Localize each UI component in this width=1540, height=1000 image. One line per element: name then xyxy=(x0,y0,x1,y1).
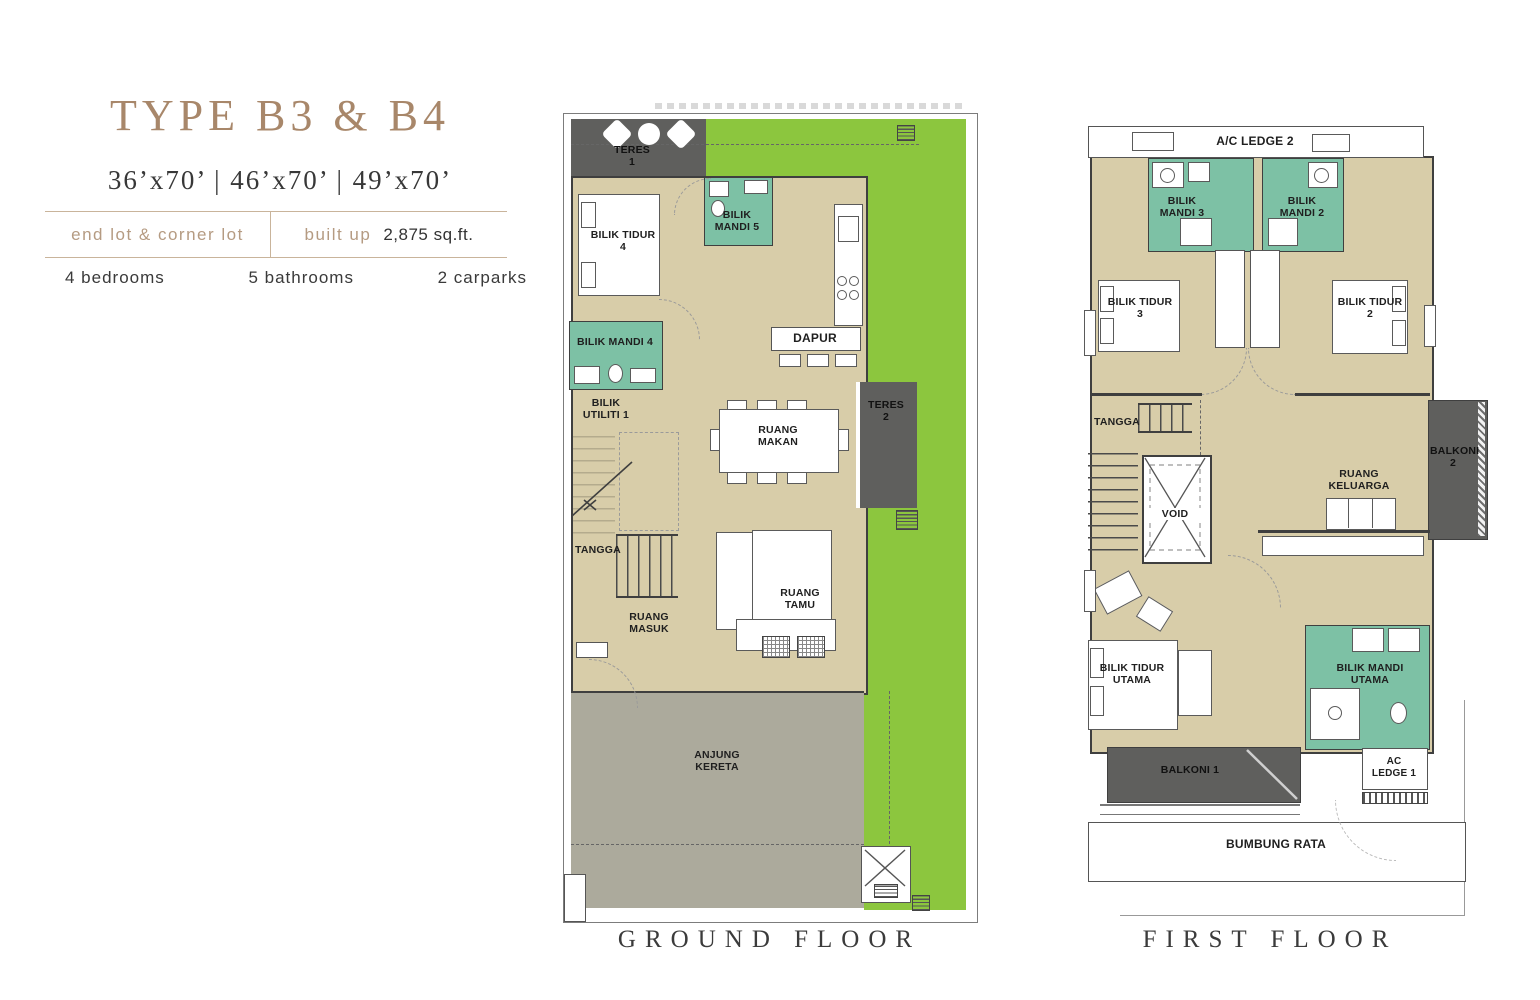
ruang-tamu-label: RUANG TAMU xyxy=(767,587,833,611)
bilik-tidur-4-label: BILIK TIDUR 4 xyxy=(588,229,658,253)
ottoman xyxy=(762,636,790,658)
bilik-tidur-2-label: BILIK TIDUR 2 xyxy=(1334,296,1406,320)
bilik-mandi-2-label: BILIK MANDI 2 xyxy=(1272,195,1332,219)
faint-top-strip xyxy=(655,103,965,109)
spec-row: 4 bedrooms 5 bathrooms 2 carparks xyxy=(45,268,569,288)
tv-console xyxy=(1262,536,1424,556)
sofa-chaise xyxy=(716,532,754,630)
pillow xyxy=(581,262,596,288)
ruang-masuk-label: RUANG MASUK xyxy=(619,611,679,635)
sofa-divider xyxy=(1348,498,1349,528)
bilik-utiliti-1-label: BILIK UTILITI 1 xyxy=(576,397,636,421)
lot-dimensions: 36’x70’ | 46’x70’ | 49’x70’ xyxy=(90,165,470,196)
built-up-label: built up xyxy=(305,225,372,245)
void-label: VOID xyxy=(1144,508,1206,520)
wall xyxy=(1090,393,1202,396)
balkoni-1-diagonal xyxy=(1245,748,1299,801)
ruang-makan-label: RUANG MAKAN xyxy=(743,424,813,448)
bilik-mandi-utama-label: BILIK MANDI UTAMA xyxy=(1327,662,1413,686)
anjung-kereta-area xyxy=(571,691,864,908)
sink xyxy=(574,366,600,384)
stool xyxy=(835,354,857,367)
ground-floor-caption: GROUND FLOOR xyxy=(563,926,976,954)
sink xyxy=(1388,628,1420,652)
balkoni-1-railing xyxy=(1100,804,1300,815)
dining-chair xyxy=(757,472,777,484)
stool xyxy=(779,354,801,367)
lot-dashed-line xyxy=(889,691,890,844)
lawn-top xyxy=(706,119,866,177)
ottoman xyxy=(797,636,825,658)
basin-bowl xyxy=(1314,168,1329,183)
balkoni-1-label: BALKONI 1 xyxy=(1135,764,1245,776)
stool xyxy=(807,354,829,367)
bilik-mandi-3-label: BILIK MANDI 3 xyxy=(1152,195,1212,219)
tangga-label-gf: TANGGA xyxy=(567,544,629,556)
basin xyxy=(630,368,656,383)
wall xyxy=(1295,393,1430,396)
carparks-count: 2 carparks xyxy=(438,268,527,288)
sofa-divider xyxy=(1372,498,1373,528)
stair-flight-left xyxy=(1088,453,1138,555)
bilik-mandi-4-label: BILIK MANDI 4 xyxy=(576,336,654,348)
ac-unit xyxy=(1132,132,1174,151)
drain-icon xyxy=(896,510,918,530)
lamp-icon xyxy=(638,123,660,145)
carport-dashed-line xyxy=(571,844,864,845)
pillow xyxy=(1392,320,1406,346)
toilet xyxy=(1390,702,1407,724)
gate-pillar xyxy=(564,874,586,922)
bumbung-rata-area xyxy=(1088,822,1466,882)
drain-icon xyxy=(912,895,930,911)
bumbung-rata-label: BUMBUNG RATA xyxy=(1220,838,1332,852)
corridor-strip xyxy=(1250,250,1280,348)
ground-floor-plan: TERES 1 BILIK TIDUR 4 BILIK MANDI 5 DAPU… xyxy=(563,113,978,923)
meter-box xyxy=(874,884,898,898)
corridor-strip xyxy=(1215,250,1245,348)
hob-burner xyxy=(837,290,847,300)
ruang-keluarga-label: RUANG KELUARGA xyxy=(1318,468,1400,492)
balkoni-2-railing xyxy=(1478,402,1485,536)
dining-chair xyxy=(787,472,807,484)
utility-x-mark xyxy=(863,848,907,888)
sink xyxy=(709,181,729,197)
teres-2-label: TERES 2 xyxy=(866,399,906,423)
coffee-table xyxy=(752,530,832,628)
window xyxy=(1084,310,1096,356)
pillow xyxy=(1090,686,1104,716)
built-up-value: 2,875 sq.ft. xyxy=(383,225,473,245)
window xyxy=(1084,570,1096,612)
bedrooms-count: 4 bedrooms xyxy=(65,268,165,288)
sink xyxy=(1352,628,1384,652)
first-floor-caption: FIRST FLOOR xyxy=(1080,926,1460,954)
wardrobe xyxy=(1178,650,1212,716)
sofa xyxy=(1326,498,1396,530)
hob-burner xyxy=(837,276,847,286)
basin xyxy=(744,180,768,194)
toilet xyxy=(608,364,623,383)
shower-tray xyxy=(1268,218,1298,246)
spec-table: end lot & corner lot built up 2,875 sq.f… xyxy=(45,211,507,258)
drain-icon xyxy=(897,125,915,141)
stair-direction-arrow xyxy=(570,444,640,524)
anjung-kereta-label: ANJUNG KERETA xyxy=(682,749,752,773)
dapur-label: DAPUR xyxy=(771,332,859,346)
bilik-tidur-3-label: BILIK TIDUR 3 xyxy=(1105,296,1175,320)
bilik-mandi-5-label: BILIK MANDI 5 xyxy=(707,209,767,233)
hob-burner xyxy=(849,276,859,286)
kitchen-sink xyxy=(838,216,859,242)
ac-ledge-1-grille xyxy=(1362,792,1428,804)
ac-ledge-2-label: A/C LEDGE 2 xyxy=(1180,135,1330,149)
page-title: TYPE B3 & B4 xyxy=(90,90,470,141)
hob-burner xyxy=(849,290,859,300)
wall xyxy=(1258,530,1430,533)
built-up-cell: built up 2,875 sq.ft. xyxy=(271,212,507,257)
teres-1-label: TERES 1 xyxy=(612,144,652,168)
lot-type-cell: end lot & corner lot xyxy=(45,212,271,257)
basin-bowl xyxy=(1160,168,1175,183)
bathrooms-count: 5 bathrooms xyxy=(248,268,354,288)
shower-tray xyxy=(1180,218,1212,246)
balkoni-2-label: BALKONI 2 xyxy=(1430,445,1476,469)
pillow xyxy=(1100,318,1114,344)
tangga-label-ff: TANGGA xyxy=(1094,416,1154,428)
floor-plan-sheet: TYPE B3 & B4 36’x70’ | 46’x70’ | 49’x70’… xyxy=(0,0,1540,1000)
dining-chair xyxy=(727,472,747,484)
cistern xyxy=(1188,162,1210,182)
pillow xyxy=(581,202,596,228)
entry-step xyxy=(576,642,608,658)
first-floor-plan: A/C LEDGE 2 BILIK MANDI 3 BILIK MANDI 2 … xyxy=(1080,100,1495,922)
stair-dashed-line xyxy=(1200,400,1201,455)
shower-drain xyxy=(1328,706,1342,720)
window xyxy=(1424,305,1436,347)
bilik-tidur-utama-label: BILIK TIDUR UTAMA xyxy=(1092,662,1172,686)
ac-ledge-1-label: AC LEDGE 1 xyxy=(1368,756,1420,779)
